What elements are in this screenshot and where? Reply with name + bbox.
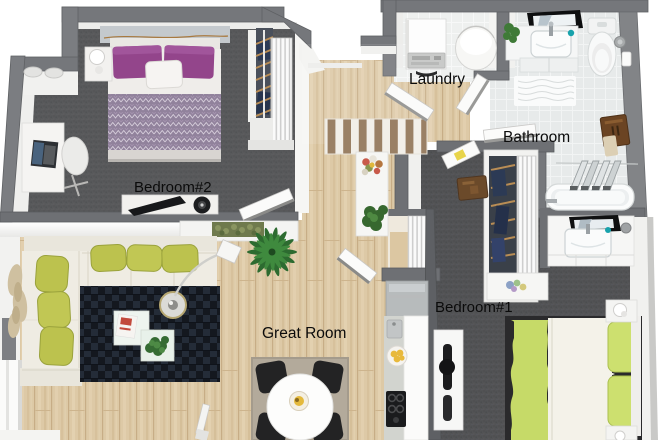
svg-text:Bedroom#1: Bedroom#1 [435, 299, 513, 316]
svg-text:Bedroom#2: Bedroom#2 [134, 179, 212, 196]
svg-text:Bathroom: Bathroom [503, 129, 570, 146]
svg-text:Great Room: Great Room [262, 325, 346, 342]
svg-text:Laundry: Laundry [409, 71, 465, 88]
